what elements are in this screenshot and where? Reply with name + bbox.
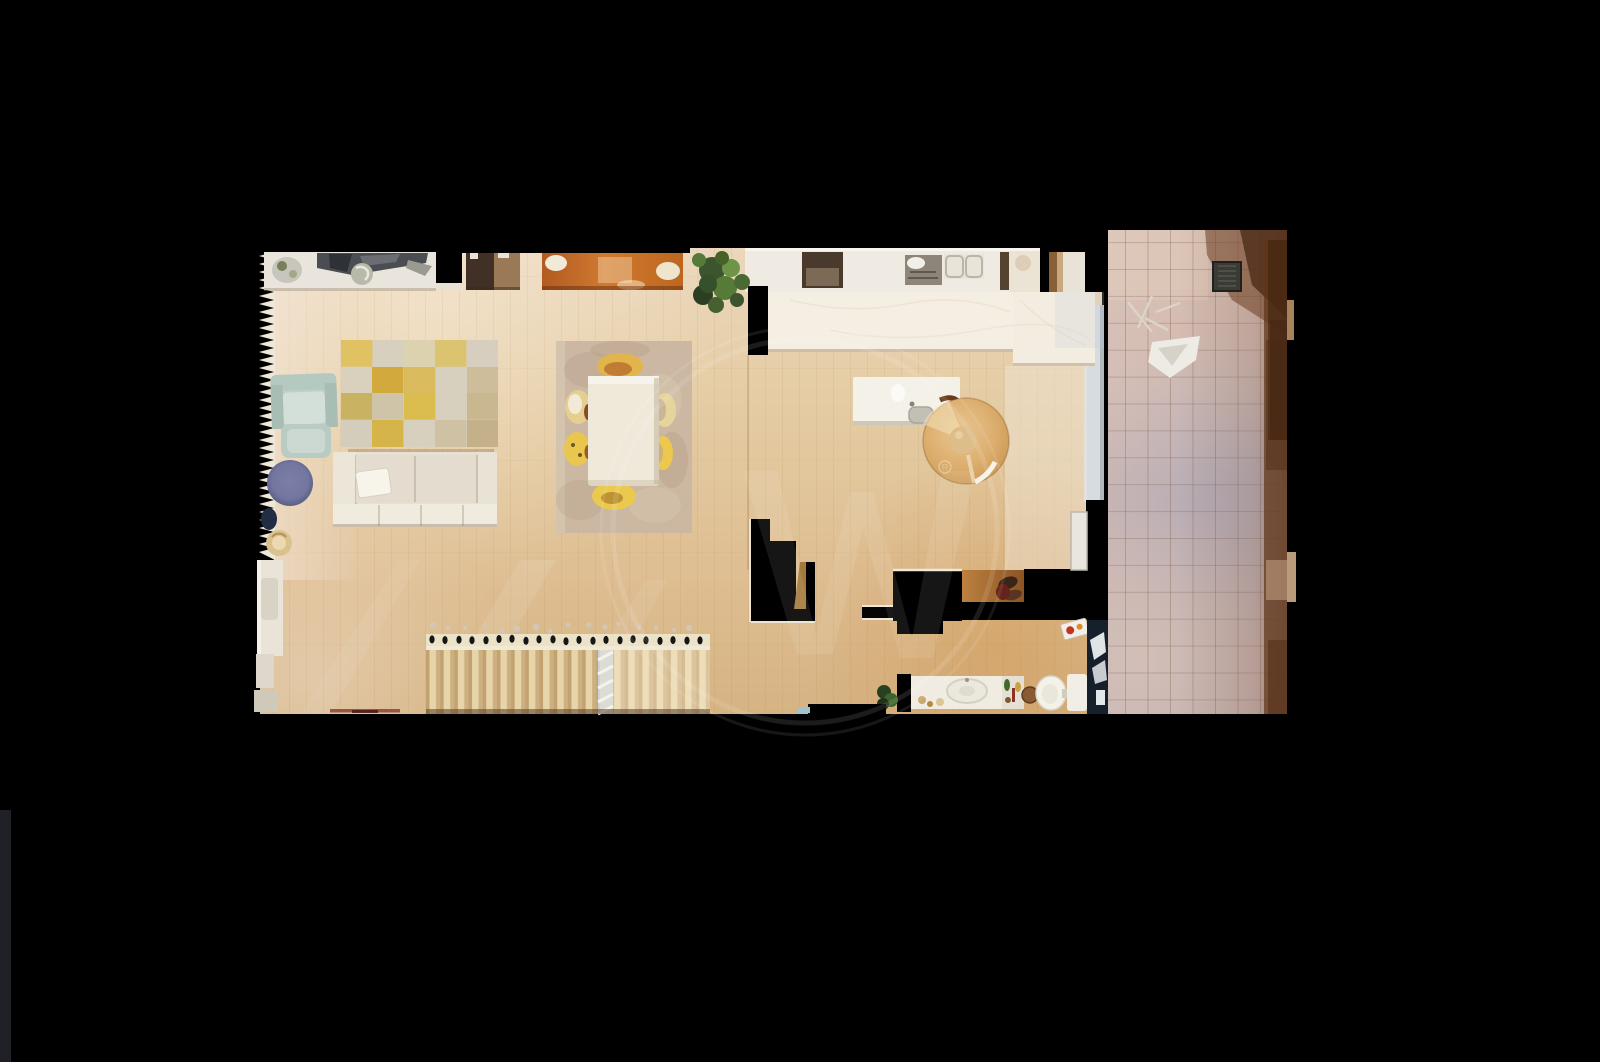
- svg-text:R: R: [942, 463, 949, 473]
